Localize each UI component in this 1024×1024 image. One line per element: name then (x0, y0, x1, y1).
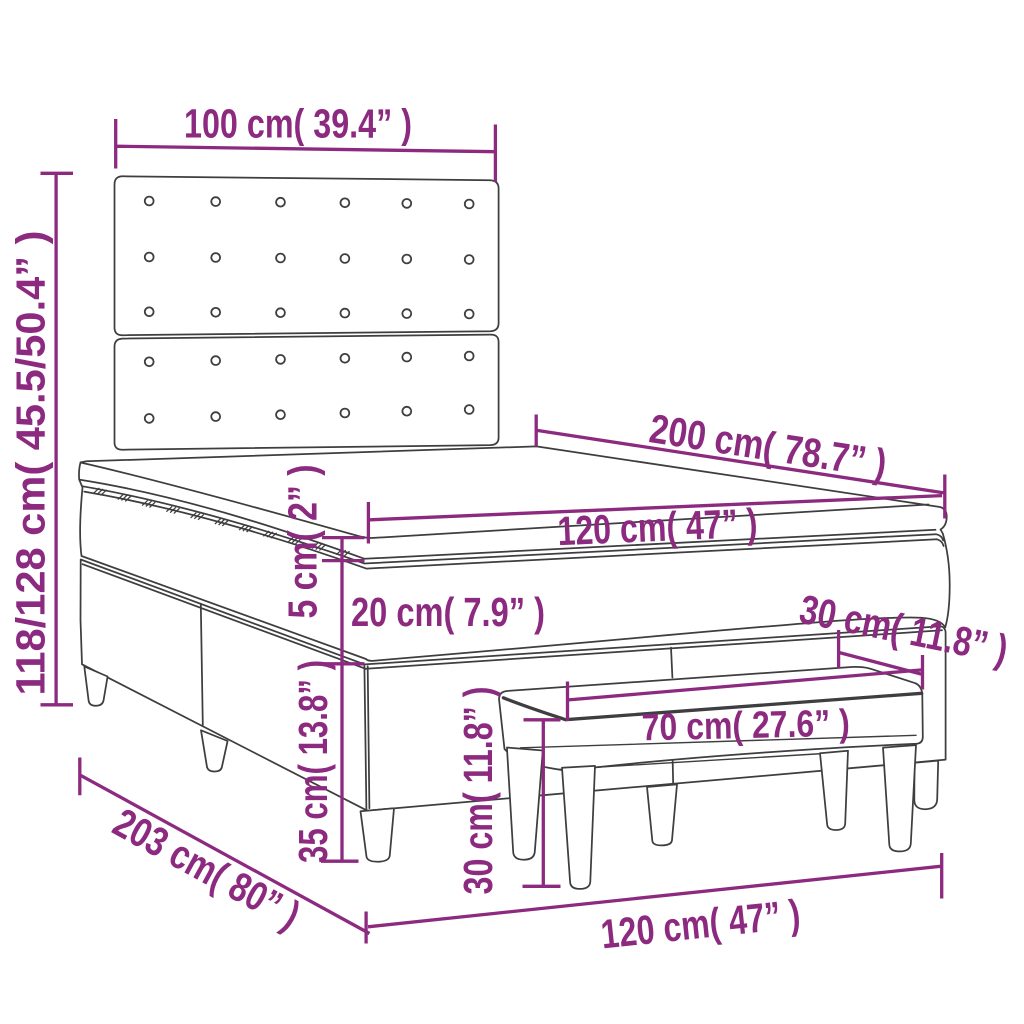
svg-text:30 cm( 11.8” ): 30 cm( 11.8” ) (455, 687, 501, 895)
svg-text:118/128 cm( 45.5/50.4” ): 118/128 cm( 45.5/50.4” ) (8, 231, 54, 696)
svg-text:35 cm( 13.8” ): 35 cm( 13.8” ) (290, 660, 336, 863)
svg-text:5 cm( 2” ): 5 cm( 2” ) (280, 465, 326, 619)
svg-text:120 cm( 47” ): 120 cm( 47” ) (557, 500, 759, 554)
svg-text:20 cm( 7.9” ): 20 cm( 7.9” ) (351, 589, 545, 635)
svg-text:70 cm( 27.6” ): 70 cm( 27.6” ) (641, 703, 850, 750)
svg-text:100 cm( 39.4” ): 100 cm( 39.4” ) (184, 101, 412, 147)
